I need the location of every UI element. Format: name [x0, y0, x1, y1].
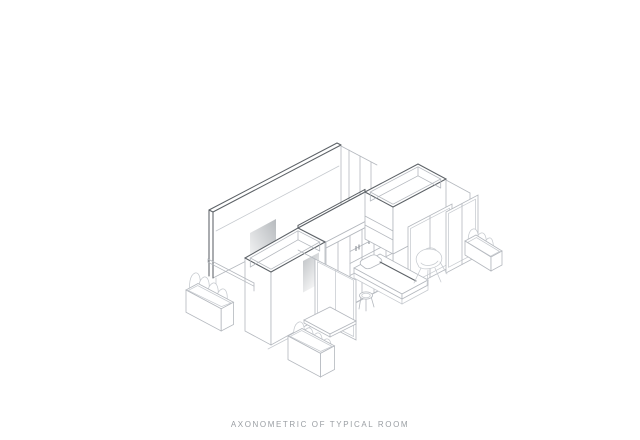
axonometric-drawing — [0, 0, 640, 440]
caption: AXONOMETRIC OF TYPICAL ROOM — [0, 420, 640, 429]
planter-left — [186, 273, 234, 331]
planter-right — [465, 229, 502, 271]
stool — [359, 292, 374, 311]
drawing-canvas: AXONOMETRIC OF TYPICAL ROOM — [0, 0, 640, 440]
